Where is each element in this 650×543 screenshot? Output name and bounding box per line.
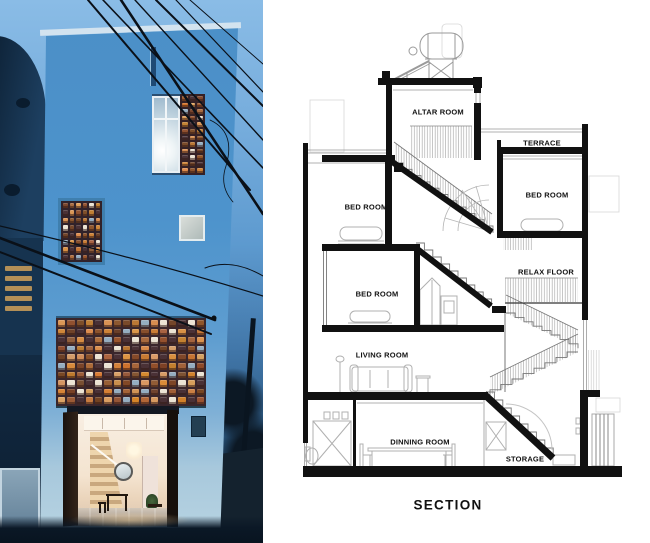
bed-right	[521, 219, 563, 231]
toilet	[306, 448, 318, 464]
bed-upper-left	[340, 227, 382, 240]
stair-wall	[414, 247, 420, 327]
right-exterior-wall	[582, 124, 588, 320]
altar-left-wall	[386, 85, 392, 161]
room-label-altar: ALTAR ROOM	[412, 108, 464, 117]
ground-slab	[303, 466, 622, 477]
wardrobe	[420, 278, 440, 325]
dining-table	[368, 448, 452, 451]
stair-steps	[394, 163, 578, 456]
bed-lower-left	[350, 311, 390, 322]
chair	[360, 444, 363, 468]
kitchen-cabinet	[324, 412, 330, 419]
ladder	[592, 414, 614, 466]
room-label-terrace: TERRACE	[523, 139, 561, 148]
room-label-bedroom-upper: BED ROOM	[345, 203, 388, 212]
altar-window-gap	[472, 93, 483, 103]
room-label-bedroom-right: BED ROOM	[526, 191, 569, 200]
relax-landing	[492, 306, 506, 313]
bedroom1-ceiling	[322, 155, 387, 162]
room-label-living: LIVING ROOM	[356, 351, 409, 360]
page: ALTAR ROOM TERRACE BED ROOM BED ROOM REL…	[0, 0, 650, 543]
room-label-bedroom-lower: BED ROOM	[356, 290, 399, 299]
chair	[452, 444, 455, 468]
bedroom2-left-wall	[497, 154, 503, 234]
bedroom3-floor	[322, 325, 504, 332]
room-label-dining: DINNING ROOM	[390, 438, 449, 447]
storage-right-wall	[580, 390, 588, 468]
dining-left-wall	[353, 400, 356, 467]
sofa	[352, 367, 408, 391]
living-floor	[305, 392, 488, 400]
roof-slab	[378, 78, 475, 85]
room-label-relax-floor: RELAX FLOOR	[518, 268, 574, 277]
water-tank	[389, 33, 463, 84]
room-label-storage: STORAGE	[506, 455, 544, 464]
terrace-slab	[497, 147, 588, 154]
section-title: SECTION	[413, 498, 482, 513]
side-table	[416, 376, 430, 378]
bedroom2-floor	[497, 231, 588, 238]
bedroom1-floor	[322, 244, 420, 251]
